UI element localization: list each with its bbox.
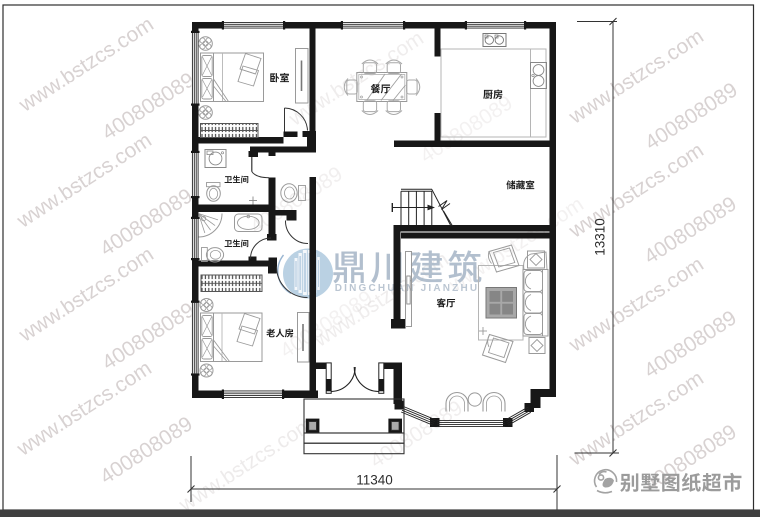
- svg-text:13310: 13310: [593, 218, 608, 256]
- svg-text:11340: 11340: [356, 473, 393, 488]
